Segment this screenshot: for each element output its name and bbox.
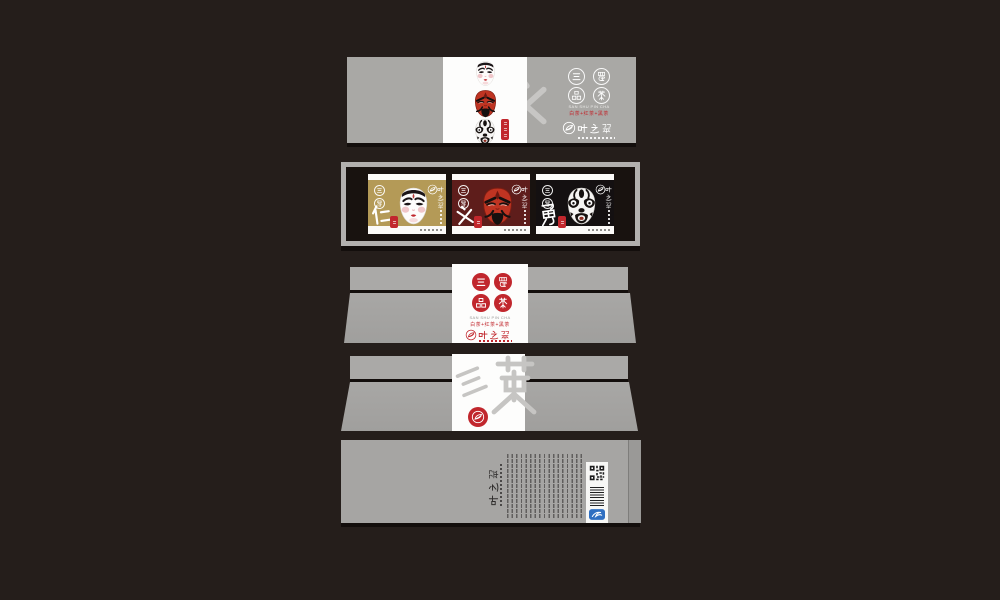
lid-top-panel: SAN SHU PIN CHA 白茶+红茶+黑茶 bbox=[452, 264, 528, 343]
watermark-ying-glyph bbox=[482, 354, 546, 418]
packet-footer-text bbox=[420, 229, 442, 231]
packet-footer-text bbox=[588, 229, 610, 231]
tagline-en: SAN SHU PIN CHA bbox=[561, 104, 617, 109]
box-back-shadow bbox=[341, 523, 640, 527]
packet-footer-text bbox=[504, 229, 526, 231]
sleeve-front-shadow bbox=[347, 143, 636, 147]
box-back-fold bbox=[628, 440, 641, 523]
packet-seal-san bbox=[542, 185, 553, 196]
back-code-strip bbox=[586, 462, 608, 523]
open-box-shadow bbox=[341, 246, 640, 251]
seal-char-san bbox=[472, 273, 490, 291]
back-info-text bbox=[507, 454, 584, 518]
seal-char-pin bbox=[568, 87, 585, 104]
virtues-seal-stamp bbox=[501, 119, 509, 140]
tagline-cn: 白茶+红茶+黑茶 bbox=[563, 110, 615, 117]
brand-round-seal bbox=[468, 407, 488, 427]
tea-packet-yi bbox=[452, 174, 530, 234]
tea-packet-yong bbox=[536, 174, 614, 234]
box-back bbox=[341, 440, 640, 523]
anti-fake-mark bbox=[589, 509, 605, 520]
leaf-logo-icon bbox=[465, 329, 477, 341]
seal-char-san bbox=[568, 68, 585, 85]
packaging-mockup: SAN SHU PIN CHA 白茶+红茶+黑茶 bbox=[0, 0, 1000, 600]
seal-char-shu bbox=[593, 68, 610, 85]
qr-code bbox=[589, 465, 605, 481]
brand-logo-vertical bbox=[437, 186, 444, 224]
seal-char-shu bbox=[494, 273, 512, 291]
brand-logo-vertical bbox=[605, 186, 612, 224]
black-face-mask bbox=[471, 118, 499, 143]
barcode bbox=[590, 485, 604, 506]
brand-logo bbox=[562, 121, 612, 135]
seal-char-cha bbox=[593, 87, 610, 104]
brand-logo-vertical bbox=[521, 186, 528, 224]
brand-logo-subline bbox=[578, 137, 615, 139]
tagline-cn: 白茶+红茶+黑茶 bbox=[464, 321, 516, 328]
seal-char-pin bbox=[472, 294, 490, 312]
brand-logo-subline bbox=[479, 340, 512, 342]
tagline-en: SAN SHU PIN CHA bbox=[462, 315, 518, 320]
white-face-mask bbox=[473, 60, 498, 87]
packet-seal-san bbox=[374, 185, 385, 196]
sleeve-center-panel bbox=[443, 57, 527, 143]
tea-packet-ren bbox=[368, 174, 446, 234]
seal-char-cha bbox=[494, 294, 512, 312]
leaf-logo-icon bbox=[562, 121, 576, 135]
sleeve-front-box: SAN SHU PIN CHA 白茶+红茶+黑茶 bbox=[347, 57, 636, 143]
packet-seal-san bbox=[458, 185, 469, 196]
back-brand-name bbox=[488, 462, 504, 506]
red-face-mask bbox=[472, 89, 499, 118]
